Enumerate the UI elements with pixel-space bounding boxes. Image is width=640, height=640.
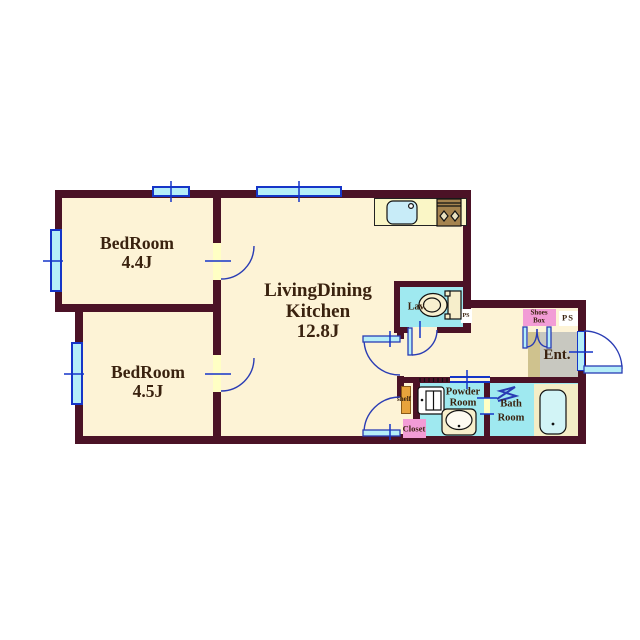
washing-machine-icon (418, 387, 444, 414)
entrance-door-arc (584, 331, 622, 369)
bedroom1-label: BedRoom 4.4J (100, 234, 174, 272)
bath-room-label: Bath Room (498, 397, 525, 424)
powder-sink-icon (442, 409, 476, 435)
ps-small-label: PS (462, 313, 469, 319)
stove-icon (437, 199, 461, 226)
closet-label: Closet (403, 424, 426, 433)
ldk-label: LivingDining Kitchen 12.8J (264, 281, 372, 343)
lav-label: Lav. (408, 303, 427, 314)
shoes-cabinet-arc-right (537, 329, 547, 347)
bathtub-icon (540, 390, 566, 434)
bedroom2-name: BedRoom (111, 363, 185, 382)
entrance-door-leaf (584, 366, 622, 373)
ldk-line1: LivingDining (264, 281, 372, 302)
washer-pan-hatch (420, 378, 447, 382)
powder-line1: Powder (446, 387, 480, 398)
ps-label: PS (562, 313, 574, 322)
bedroom1-door-arc (221, 246, 254, 279)
ldk-size: 12.8J (264, 322, 372, 343)
lav-door-arc (412, 330, 437, 355)
shoes-cabinet-arc-left (527, 329, 537, 347)
bedroom2-size: 4.5J (111, 382, 185, 401)
bedroom2-label: BedRoom 4.5J (111, 363, 185, 401)
floor-plan: BedRoom 4.4J BedRoom 4.5J LivingDining K… (0, 0, 640, 640)
entrance-label: Ent. (543, 347, 570, 363)
shoes-box-line2: Box (530, 317, 547, 325)
kitchen-sink-icon (387, 201, 417, 224)
shoes-box-label: Shoes Box (530, 309, 547, 324)
bedroom1-size: 4.4J (100, 253, 174, 272)
hall-door1-arc (364, 339, 400, 375)
shoes-cabinet-leaf-left (523, 327, 527, 348)
hall-door2-leaf (363, 430, 400, 436)
bath-line2: Room (498, 411, 525, 425)
bath-line1: Bath (498, 397, 525, 411)
shoes-cabinet-leaf-right (547, 327, 551, 348)
ldk-line2: Kitchen (264, 302, 372, 323)
lav-door-leaf (408, 328, 412, 355)
powder-line2: Room (446, 398, 480, 409)
shelf-label: shelf (397, 396, 411, 404)
bedroom1-name: BedRoom (100, 234, 174, 253)
powder-room-label: Powder Room (446, 387, 480, 410)
hall-door2-arc (364, 397, 400, 433)
